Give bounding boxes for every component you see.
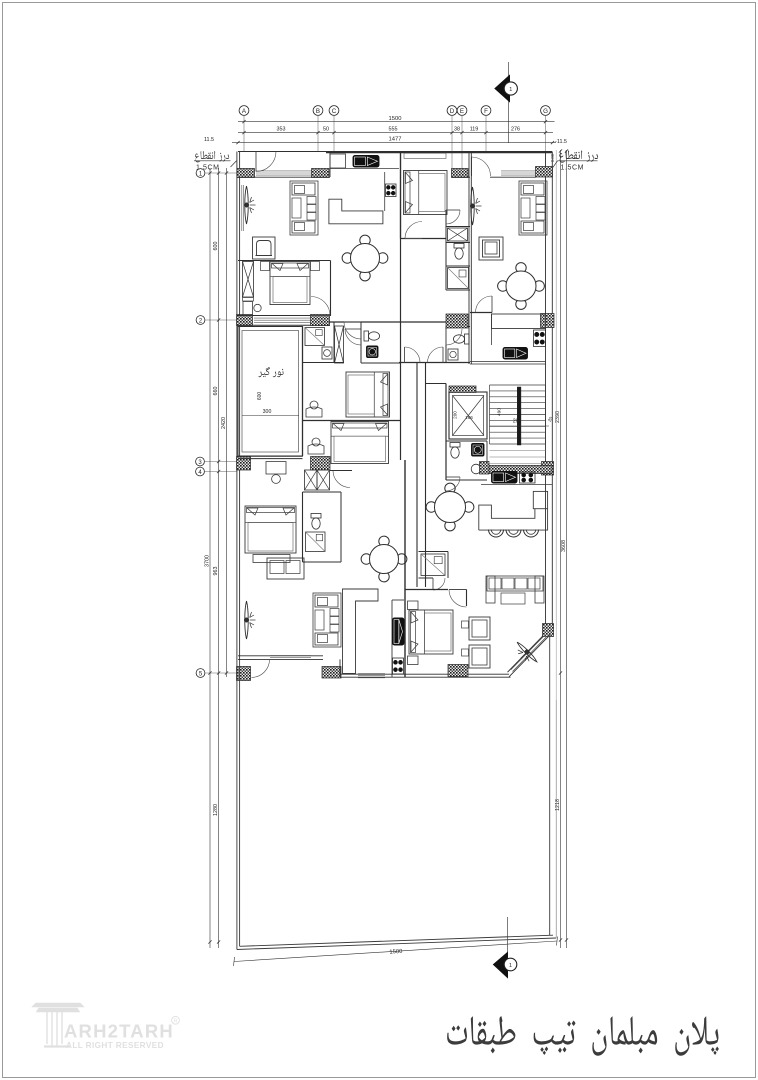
svg-text:200: 200 [453,411,458,419]
svg-text:600: 600 [257,392,263,401]
svg-text:B: B [316,108,320,115]
svg-text:1280: 1280 [213,804,219,816]
svg-text:353: 353 [277,127,286,133]
svg-text:490: 490 [497,408,503,416]
svg-text:F: F [484,108,488,115]
svg-text:0.80: 0.80 [550,153,555,162]
svg-text:1.5CM: 1.5CM [196,165,220,172]
svg-text:3608: 3608 [561,540,567,552]
svg-text:600: 600 [213,242,219,251]
svg-text:ARH2TARH: ARH2TARH [64,1021,174,1042]
svg-text:266: 266 [513,419,522,425]
svg-text:166: 166 [465,415,473,420]
svg-text:-11.5: -11.5 [555,139,567,145]
svg-text:1.5CM: 1.5CM [561,165,585,172]
svg-text:276: 276 [511,127,520,133]
svg-text:1: 1 [509,963,512,969]
svg-text:D: D [450,108,455,115]
svg-text:1500: 1500 [389,116,402,122]
svg-text:2420: 2420 [221,417,227,429]
svg-text:G: G [543,108,548,115]
svg-text:963: 963 [213,567,219,576]
svg-text:1: 1 [509,87,512,93]
svg-text:E: E [460,108,464,115]
svg-text:660: 660 [213,387,219,396]
svg-text:3700: 3700 [204,555,210,567]
svg-text:555: 555 [389,127,398,133]
svg-text:119: 119 [470,127,479,133]
svg-text:2390: 2390 [555,411,561,423]
svg-text:300: 300 [263,409,272,415]
svg-text:1477: 1477 [389,137,402,143]
svg-text:11.5: 11.5 [204,137,214,143]
svg-text:C: C [332,108,337,115]
svg-text:38: 38 [454,127,460,133]
svg-text:R: R [174,1019,178,1025]
svg-text:50: 50 [323,127,329,133]
svg-text:ALL RIGHT RESERVED: ALL RIGHT RESERVED [66,1041,164,1050]
svg-text:1500: 1500 [389,949,402,956]
